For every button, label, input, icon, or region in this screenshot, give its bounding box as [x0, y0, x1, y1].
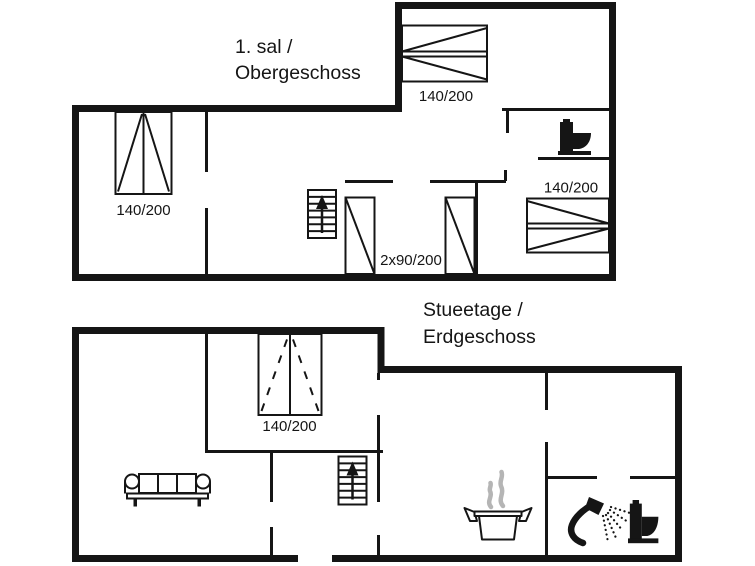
- sofa-icon: [125, 474, 210, 507]
- bed-right-size-label: 140/200: [544, 180, 598, 197]
- floor-plan-image: 1. sal / Obergeschoss 140/200 140/200 14…: [0, 0, 755, 566]
- stairs-up-icon: [308, 190, 336, 238]
- bed-double-right: [527, 199, 609, 253]
- bed-pair-size-label: 2x90/200: [380, 252, 442, 269]
- bed-double-top: [402, 26, 487, 82]
- shower-icon: [571, 497, 630, 543]
- bed-left-size-label: 140/200: [116, 202, 170, 219]
- steam-icon: [489, 472, 503, 507]
- upper-floor-title-line1: 1. sal /: [235, 36, 293, 58]
- cooking-pot-icon: [465, 508, 532, 540]
- ground-floor-title-line1: Stueetage /: [423, 299, 523, 321]
- toilet-icon: [628, 500, 658, 543]
- stairs-up-icon: [339, 457, 367, 505]
- bed-top-size-label: 140/200: [419, 88, 473, 105]
- ground-floor-title-line2: Erdgeschoss: [423, 326, 536, 348]
- upper-floor-plan: 1. sal / Obergeschoss 140/200 140/200 14…: [76, 6, 613, 278]
- upper-floor-title-line2: Obergeschoss: [235, 62, 361, 84]
- entrance-door-gap: [298, 553, 332, 565]
- ground-floor-plan: Stueetage / Erdgeschoss 140/200: [76, 299, 679, 565]
- upper-outer-walls: [76, 6, 613, 278]
- bed-double-ground: [259, 334, 322, 415]
- bed-double-left: [116, 112, 172, 194]
- toilet-icon: [558, 119, 591, 155]
- bed-ground-size-label: 140/200: [262, 418, 316, 435]
